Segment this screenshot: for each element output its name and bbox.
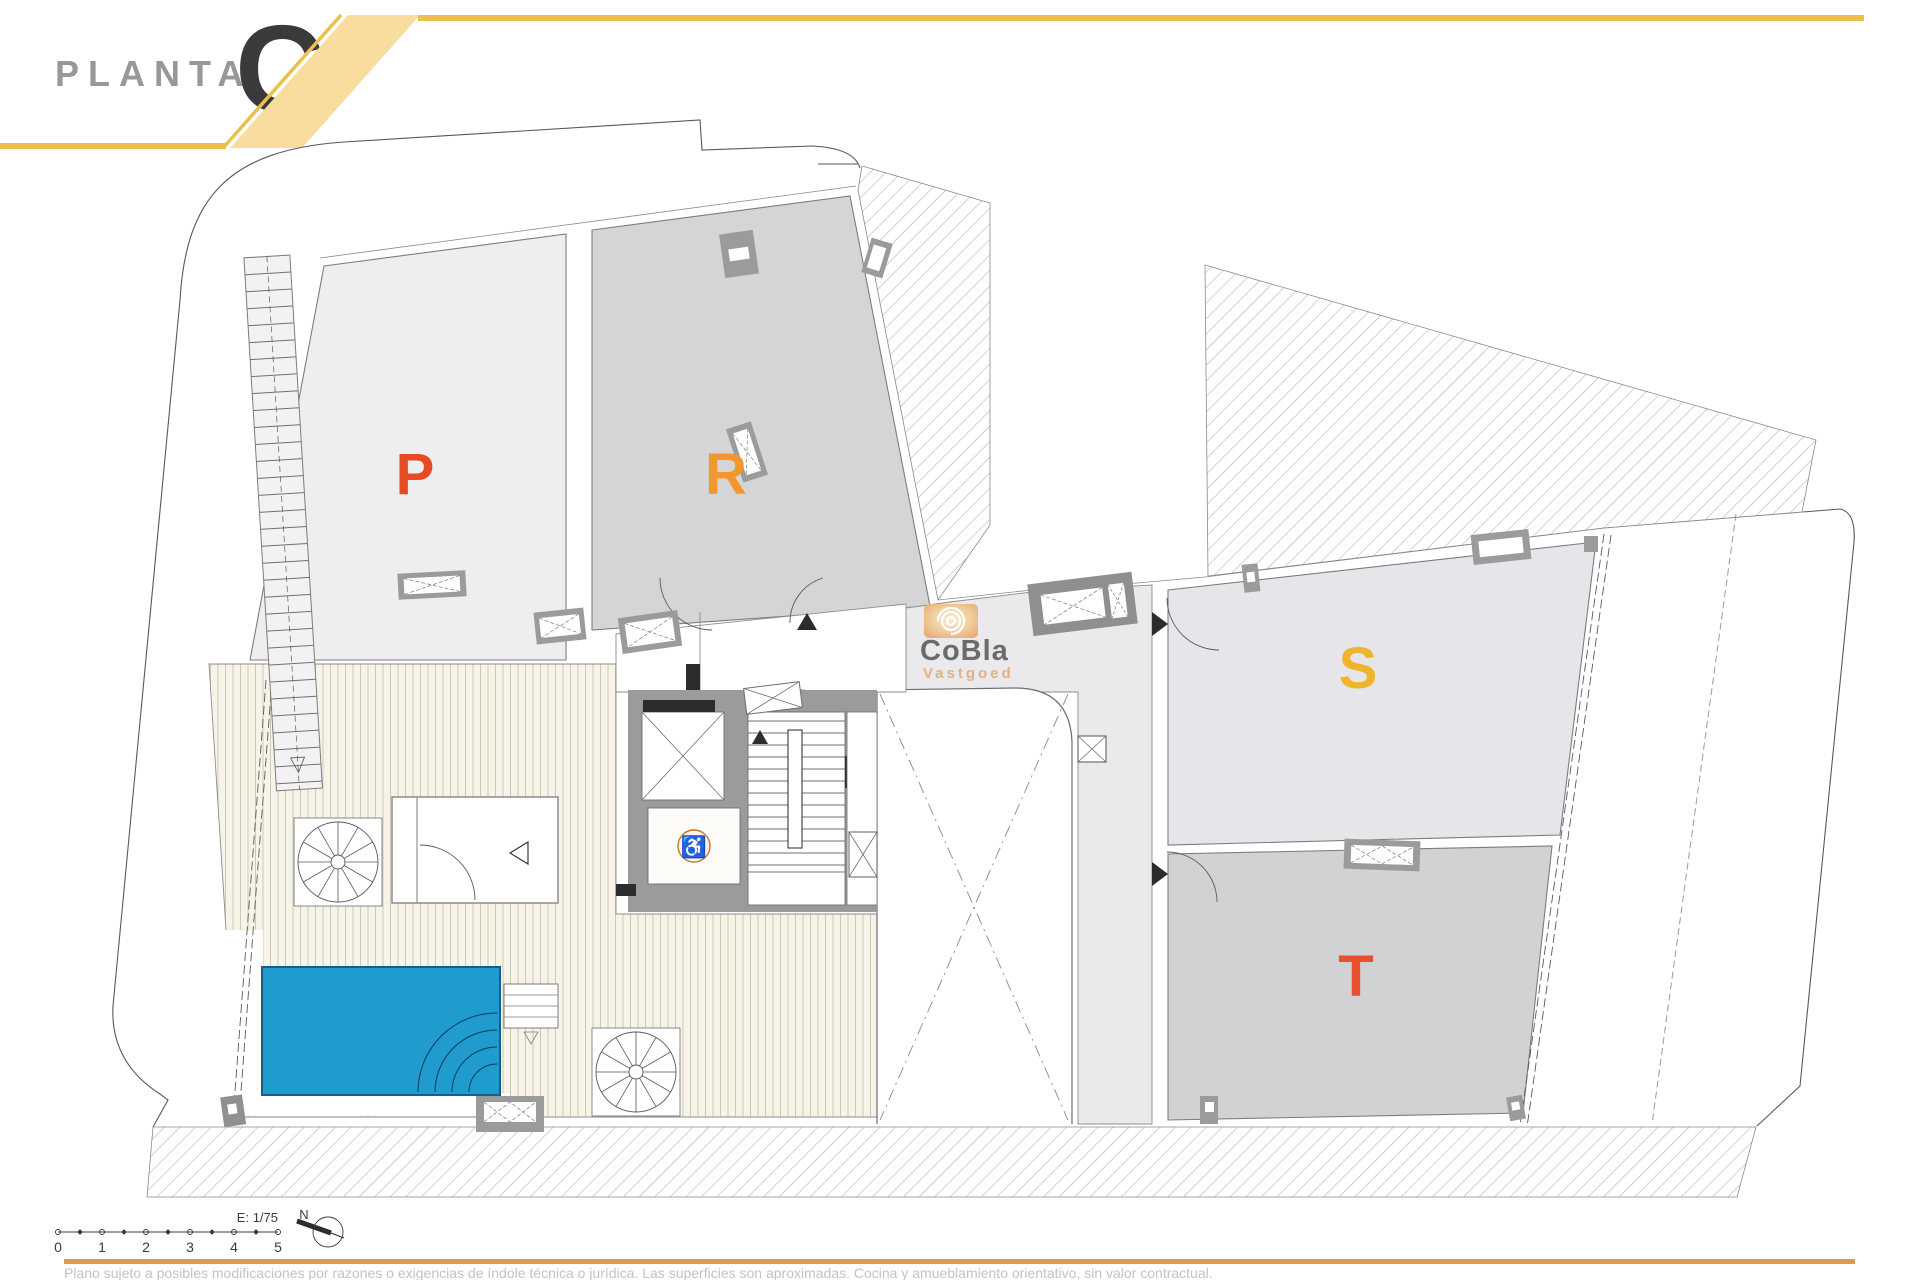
parcel-division-line (1652, 514, 1736, 1124)
window-symbol (397, 570, 466, 600)
scale-bar: 0 1 2 3 4 5 E: 1/75 (54, 1210, 282, 1255)
room-s (1168, 542, 1596, 845)
scale-tick-4: 4 (230, 1239, 238, 1255)
header-bottom-rule (0, 143, 226, 149)
floorplan-drawing: PLANTA C (0, 0, 1920, 1280)
footer-disclaimer: Plano sujeto a posibles modificaciones p… (64, 1265, 1213, 1280)
window-symbol (1200, 1096, 1218, 1124)
wheelchair-icon: ♿ (681, 834, 707, 859)
floor-label: PLANTA (55, 53, 252, 94)
window-symbol (1584, 536, 1598, 552)
window-symbol (1242, 563, 1261, 593)
spiral-stair-south (592, 1028, 680, 1116)
scale-tick-2: 2 (142, 1239, 150, 1255)
fence-post (220, 1094, 246, 1127)
room-r-label: R (705, 442, 747, 507)
room-t-label: T (1338, 944, 1373, 1009)
void-lightwell (877, 688, 1072, 1124)
deck-vestibule (392, 797, 558, 903)
swimming-pool (262, 967, 500, 1095)
deck-west-margin (209, 930, 263, 1095)
window-symbol (1471, 529, 1532, 565)
scale-ratio-label: E: 1/75 (237, 1210, 278, 1225)
north-label: N (299, 1207, 308, 1222)
window-symbol (1343, 839, 1420, 872)
cobla-logo-name: CoBla (920, 635, 1009, 667)
stair-elevator-core: ♿ (616, 604, 906, 912)
window-symbol (719, 230, 759, 278)
window-symbol (476, 1096, 544, 1132)
room-s-label: S (1339, 636, 1378, 701)
scale-tick-0: 0 (54, 1239, 62, 1255)
window-symbol (533, 607, 586, 644)
pool-walkway (200, 1093, 510, 1116)
north-arrow: N (297, 1207, 344, 1247)
hatch-band-south (147, 1127, 1756, 1197)
stair-stringer (788, 730, 802, 848)
room-p-label: P (396, 442, 435, 507)
spiral-stair-northwest (294, 818, 382, 906)
footer-orange-rule (64, 1259, 1855, 1264)
hatch-band-northeast-right (1205, 265, 1816, 576)
scale-tick-5: 5 (274, 1239, 282, 1255)
floorplan-page: PLANTA C (0, 0, 1920, 1280)
scale-tick-3: 3 (186, 1239, 194, 1255)
header-top-rule (418, 15, 1864, 21)
scale-tick-1: 1 (98, 1239, 106, 1255)
cobla-logo-subtitle: Vastgoed (923, 665, 1014, 682)
window-symbol (1078, 736, 1106, 762)
header: PLANTA C (0, 1, 1864, 149)
